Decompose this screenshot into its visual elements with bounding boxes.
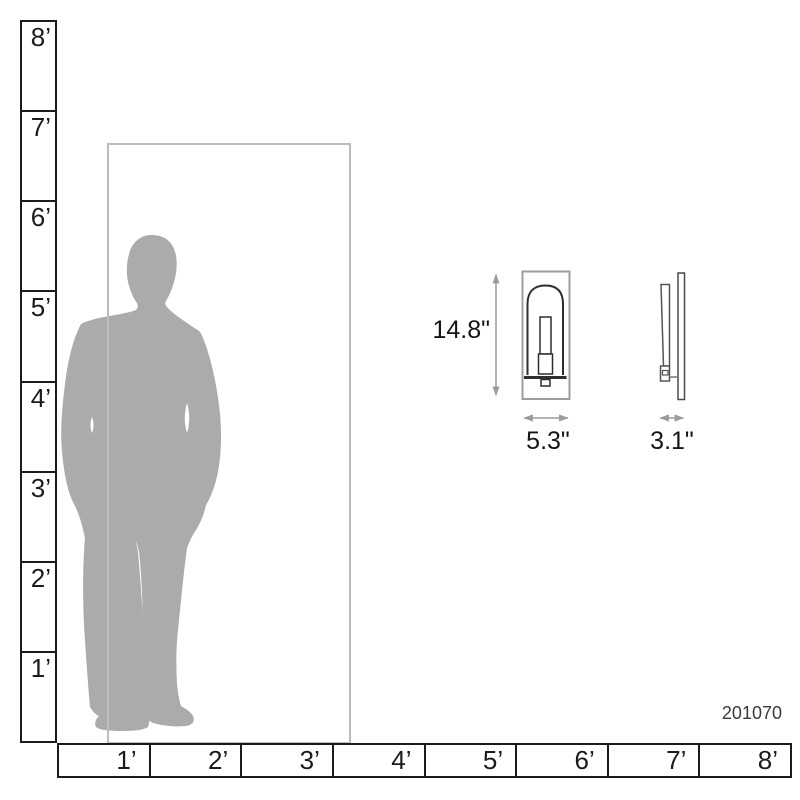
- ruler-label: 2’: [31, 563, 51, 593]
- ruler-segment: 5’: [22, 292, 55, 382]
- front-knob: [541, 380, 550, 387]
- ruler-label: 1’: [31, 653, 51, 683]
- ruler-label: 7’: [666, 745, 686, 776]
- front-width-dimension-label: 5.3": [506, 427, 590, 456]
- sconce-front-view: [523, 272, 570, 400]
- ruler-label: 3’: [31, 473, 51, 503]
- ruler-label: 1’: [116, 745, 136, 776]
- sconce-side-view: [661, 273, 685, 400]
- ruler-label: 5’: [483, 745, 503, 776]
- ruler-segment: 3’: [22, 473, 55, 563]
- ruler-segment: 2’: [22, 563, 55, 653]
- ruler-label: 8’: [758, 745, 778, 776]
- ruler-segment: 8’: [700, 745, 790, 776]
- ruler-segment: 1’: [22, 653, 55, 741]
- side-arm: [661, 285, 670, 367]
- ruler-segment: 6’: [517, 745, 609, 776]
- part-number: 201070: [668, 703, 782, 724]
- ruler-segment: 7’: [609, 745, 701, 776]
- ruler-label: 5’: [31, 292, 51, 322]
- ruler-segment: 1’: [59, 745, 151, 776]
- scale-diagram-canvas: [0, 0, 800, 800]
- ruler-segment: 5’: [426, 745, 518, 776]
- ruler-label: 6’: [575, 745, 595, 776]
- ruler-segment: 8’: [22, 22, 55, 112]
- ruler-label: 2’: [208, 745, 228, 776]
- height-dimension-label: 14.8": [406, 316, 490, 345]
- ruler-segment: 3’: [242, 745, 334, 776]
- ruler-segment: 7’: [22, 112, 55, 202]
- ruler-label: 4’: [31, 383, 51, 413]
- ruler-label: 7’: [31, 112, 51, 142]
- ruler-segment: 4’: [22, 383, 55, 473]
- ruler-label: 4’: [391, 745, 411, 776]
- person-silhouette: [61, 235, 221, 731]
- ruler-segment: 2’: [151, 745, 243, 776]
- side-backplate: [678, 273, 685, 400]
- side-depth-dimension-label: 3.1": [630, 427, 714, 456]
- ruler-segment: 6’: [22, 202, 55, 292]
- front-candle-socket: [539, 354, 553, 374]
- front-candle-tube: [540, 317, 551, 354]
- ruler-label: 8’: [31, 22, 51, 52]
- ruler-segment: 4’: [334, 745, 426, 776]
- ruler-label: 3’: [300, 745, 320, 776]
- vertical-feet-ruler: 8’ 7’ 6’ 5’ 4’ 3’ 2’ 1’: [20, 20, 57, 743]
- ruler-label: 6’: [31, 202, 51, 232]
- horizontal-feet-ruler: 1’ 2’ 3’ 4’ 5’ 6’ 7’ 8’: [57, 743, 792, 778]
